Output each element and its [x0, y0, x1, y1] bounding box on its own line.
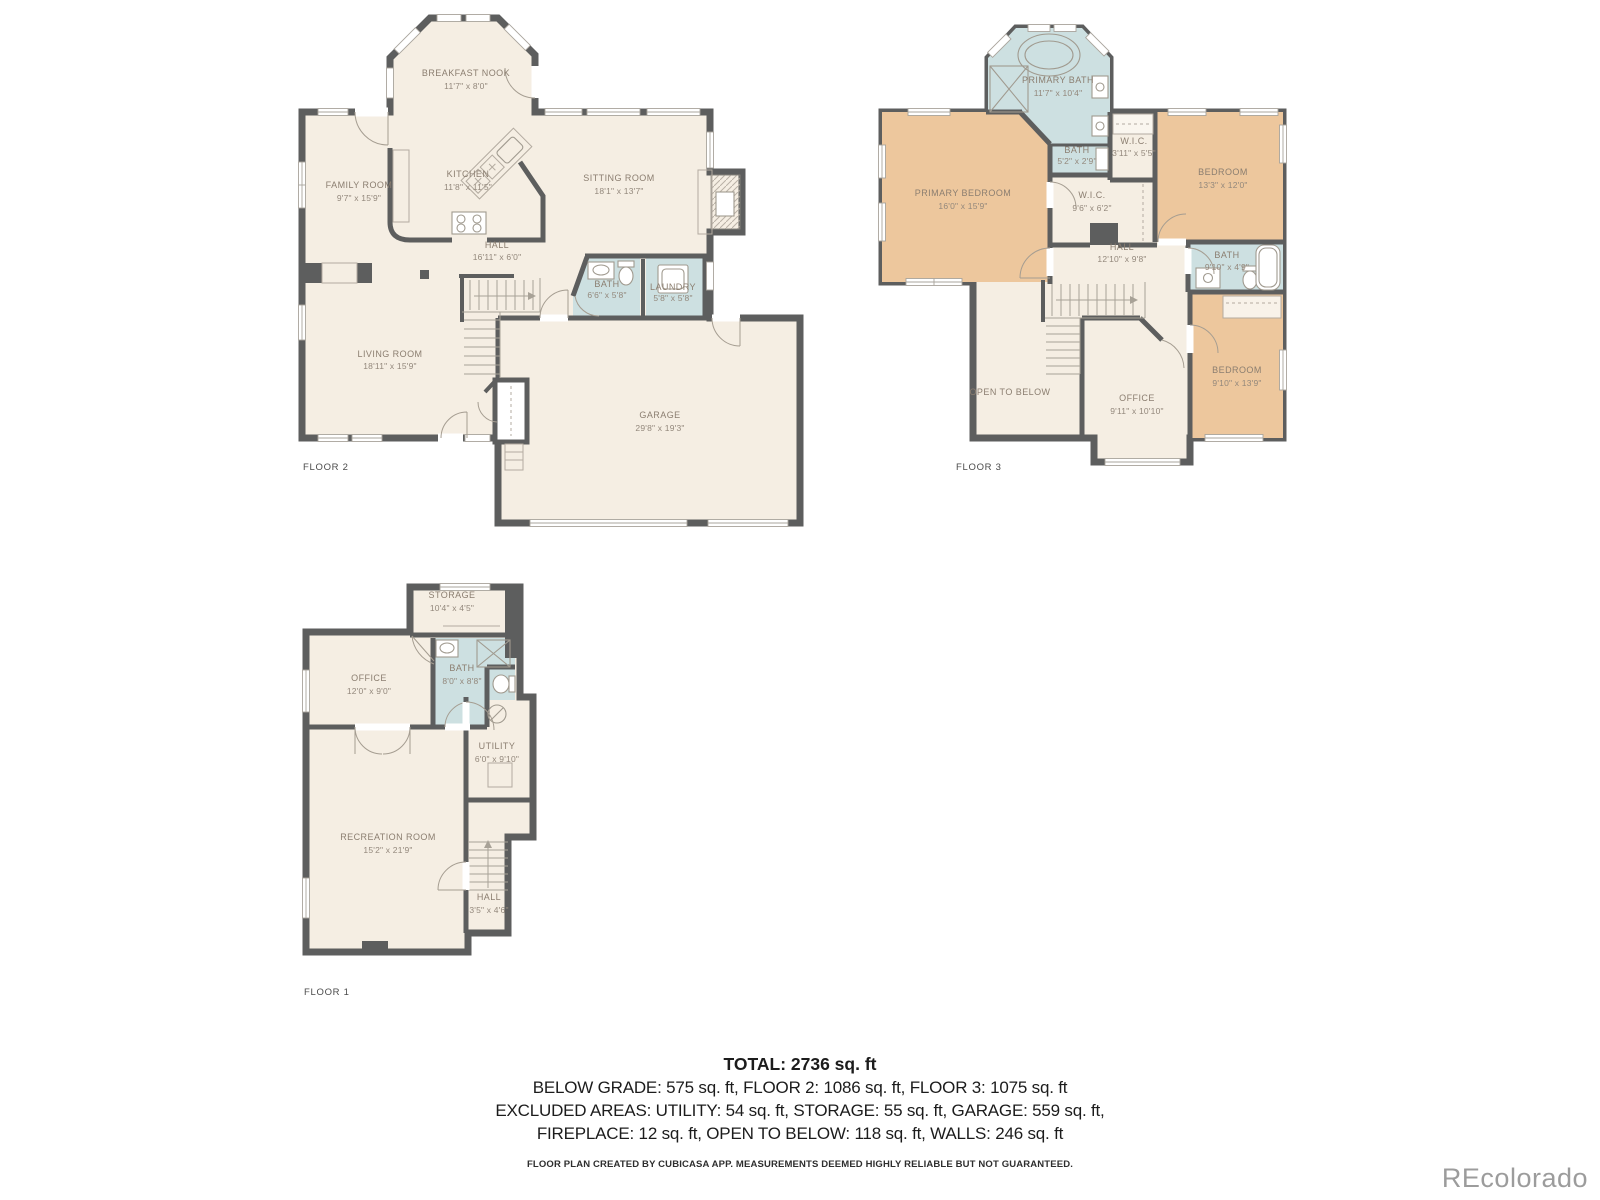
- room-dims: 12'0" x 9'0": [347, 686, 391, 696]
- disclaimer: FLOOR PLAN CREATED BY CUBICASA APP. MEAS…: [0, 1159, 1600, 1170]
- area-summary: TOTAL: 2736 sq. ft BELOW GRADE: 575 sq. …: [0, 1053, 1600, 1170]
- toilet-icon: [509, 676, 515, 692]
- floor1-plan: STORAGE 10'4" x 4'5" OFFICE 12'0" x 9'0"…: [303, 584, 534, 999]
- wall-block: [505, 587, 520, 658]
- room-dims: 11'8" x 11'5": [444, 182, 492, 192]
- room-dims: 3'11" x 5'5": [1112, 148, 1156, 158]
- fireplace-icon: [322, 263, 357, 283]
- room-dims: 16'11" x 6'0": [473, 252, 522, 262]
- room-dims: 5'8" x 5'8": [653, 293, 692, 303]
- floor1-label: FLOOR 1: [304, 987, 350, 998]
- room-label-kitchen: KITCHEN: [447, 169, 490, 179]
- room-dims: 18'11" x 15'9": [363, 361, 417, 371]
- total-area: TOTAL: 2736 sq. ft: [0, 1053, 1600, 1076]
- room-label-family-room: FAMILY ROOM: [326, 180, 393, 190]
- room-label-hall: HALL: [1110, 242, 1134, 252]
- bedroom-area: [1155, 112, 1283, 242]
- floor-areas: BELOW GRADE: 575 sq. ft, FLOOR 2: 1086 s…: [0, 1076, 1600, 1099]
- room-label-wic: W.I.C.: [1078, 190, 1105, 200]
- room-dims: 9'10" x 4'9": [1205, 262, 1249, 272]
- sink-icon: [1096, 148, 1108, 170]
- room-label-utility: UTILITY: [479, 741, 516, 751]
- room-dims: 3'5" x 4'6": [469, 905, 508, 915]
- room-dims: 10'4" x 4'5": [430, 603, 474, 613]
- room-label-hall: HALL: [477, 892, 501, 902]
- floor2-plan: BREAKFAST NOOK 11'7" x 8'0" FAMILY ROOM …: [299, 15, 801, 527]
- recolorado-watermark: REcolorado: [1442, 1163, 1588, 1194]
- fireplace-block: [357, 263, 372, 283]
- room-label-bath: BATH: [1064, 145, 1089, 155]
- room-label-bath: BATH: [594, 279, 619, 289]
- room-label-primary-bath: PRIMARY BATH: [1022, 75, 1094, 85]
- room-label-bedroom: BEDROOM: [1198, 167, 1248, 177]
- room-label-open-to-below: OPEN TO BELOW: [969, 387, 1050, 397]
- room-label-sitting-room: SITTING ROOM: [583, 173, 654, 183]
- excluded-areas-1: EXCLUDED AREAS: UTILITY: 54 sq. ft, STOR…: [0, 1099, 1600, 1122]
- room-label-breakfast-nook: BREAKFAST NOOK: [422, 68, 510, 78]
- room-dims: 16'0" x 15'9": [938, 201, 987, 211]
- room-dims: 11'7" x 10'4": [1034, 88, 1083, 98]
- room-dims: 5'2" x 2'9": [1057, 156, 1096, 166]
- room-label-bedroom2: BEDROOM: [1212, 365, 1262, 375]
- floorplan-svg: BREAKFAST NOOK 11'7" x 8'0" FAMILY ROOM …: [0, 0, 1600, 1200]
- room-label-primary-bedroom: PRIMARY BEDROOM: [915, 188, 1011, 198]
- room-dims: 11'7" x 8'0": [444, 81, 488, 91]
- room-dims: 8'0" x 8'8": [442, 676, 481, 686]
- excluded-areas-2: FIREPLACE: 12 sq. ft, OPEN TO BELOW: 118…: [0, 1122, 1600, 1145]
- sink-icon: [1092, 116, 1108, 136]
- room-label-bath: BATH: [449, 663, 474, 673]
- room-dims: 9'10" x 13'9": [1212, 378, 1261, 388]
- room-label-bath2: BATH: [1214, 250, 1239, 260]
- room-label-office: OFFICE: [351, 673, 387, 683]
- room-dims: 15'2" x 21'9": [363, 845, 412, 855]
- room-label-laundry: LAUNDRY: [650, 282, 696, 292]
- room-dims: 6'6" x 5'8": [587, 290, 626, 300]
- room-label-garage: GARAGE: [639, 410, 680, 420]
- floor3-label: FLOOR 3: [956, 462, 1002, 473]
- room-label-living-room: LIVING ROOM: [358, 349, 423, 359]
- room-label-hall: HALL: [485, 240, 509, 250]
- toilet-icon: [618, 261, 634, 267]
- room-label-office: OFFICE: [1119, 393, 1155, 403]
- room-dims: 6'0" x 9'10": [475, 754, 519, 764]
- stove-icon: [452, 212, 486, 234]
- floorplan-page: BREAKFAST NOOK 11'7" x 8'0" FAMILY ROOM …: [0, 0, 1600, 1200]
- room-dims: 9'7" x 15'9": [337, 193, 381, 203]
- room-dims: 12'10" x 9'8": [1097, 254, 1146, 264]
- wall-block: [362, 941, 388, 952]
- room-label-recreation: RECREATION ROOM: [340, 832, 436, 842]
- fireplace-block: [305, 263, 322, 283]
- room-label-storage: STORAGE: [429, 590, 476, 600]
- room-dims: 9'6" x 6'2": [1072, 203, 1111, 213]
- room-dims: 18'1" x 13'7": [594, 186, 643, 196]
- room-dims: 9'11" x 10'10": [1110, 406, 1164, 416]
- room-label-wic: W.I.C.: [1120, 136, 1147, 146]
- sink-icon: [1092, 76, 1108, 98]
- floor2-label: FLOOR 2: [303, 462, 349, 473]
- post: [420, 270, 429, 279]
- room-dims: 29'8" x 19'3": [635, 423, 684, 433]
- floor3-plan: PRIMARY BATH 11'7" x 10'4" PRIMARY BEDRO…: [879, 25, 1287, 474]
- room-dims: 13'3" x 12'0": [1198, 180, 1247, 190]
